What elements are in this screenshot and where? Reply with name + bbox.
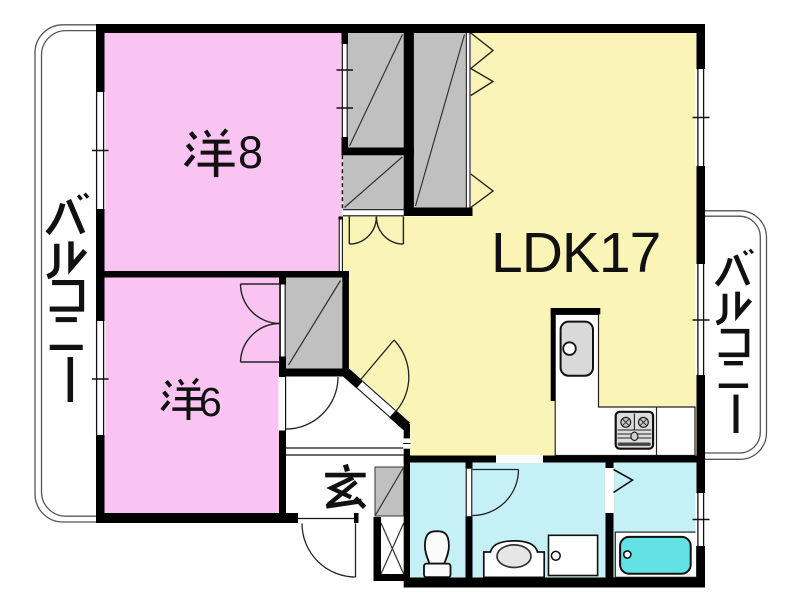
svg-text:6: 6 [199, 379, 222, 425]
svg-text:8: 8 [238, 127, 263, 178]
svg-text:LDK17: LDK17 [491, 221, 660, 285]
